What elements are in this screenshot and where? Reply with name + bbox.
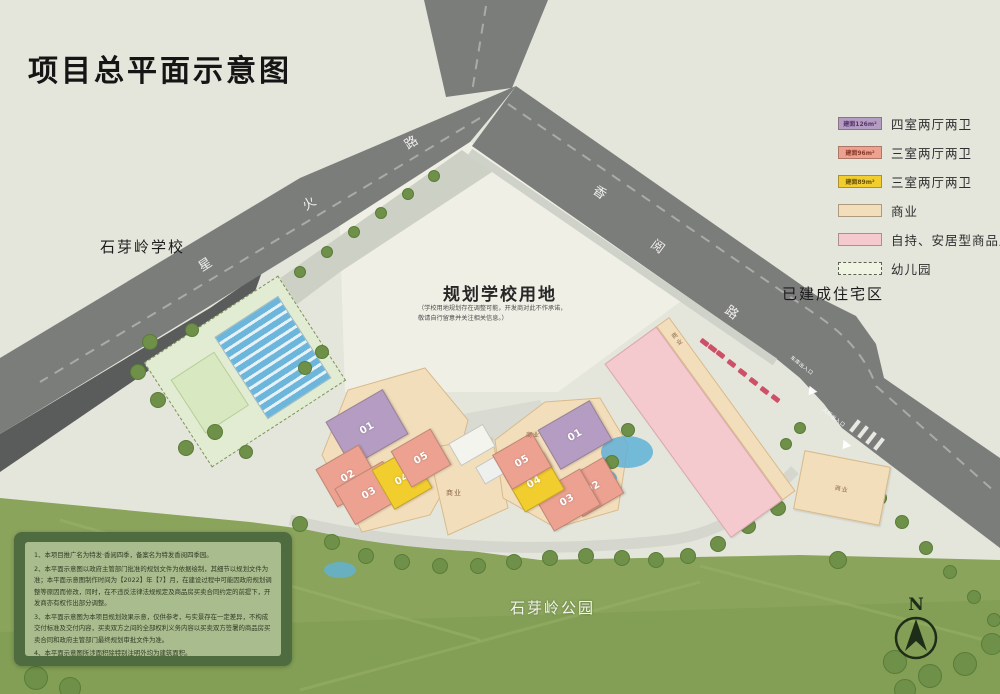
tree-icon [402, 188, 414, 200]
legend-label: 三室两厅两卫 [891, 172, 972, 191]
tree-icon [321, 246, 333, 258]
tree-icon [130, 364, 146, 380]
legend-row-126: 建面126m² 四室两厅两卫 [838, 114, 996, 133]
tree-icon [294, 266, 306, 278]
commercial-label: 商业 [526, 430, 540, 439]
tree-icon [919, 541, 933, 555]
tree-icon [794, 422, 806, 434]
tree-icon [432, 558, 448, 574]
legend-swatch-96: 建面96m² [838, 146, 882, 159]
tree-icon [894, 679, 916, 694]
tree-icon [428, 170, 440, 182]
note-line: 2、本平面示意图以政府主管部门批准的规划文件为依据绘制，其细节以规划文件为准；本… [34, 564, 272, 610]
tree-icon [506, 554, 522, 570]
legend-row-89: 建面89m² 三室两厅两卫 [838, 172, 996, 191]
tree-icon [470, 558, 486, 574]
legend-swatch-kindergarten [838, 262, 882, 275]
label-planned-school-note: （学校用地规划存在调整可能，开发商对此不作承诺，敬请自行留意并关注相关信息。） [418, 304, 570, 323]
compass-needle-icon [905, 619, 927, 651]
legend-label: 三室两厅两卫 [891, 143, 972, 162]
label-planned-school: 规划学校用地 [414, 280, 586, 305]
tree-icon [150, 392, 166, 408]
notes-panel-inner: 1、本项目推广名为特发·香阅四季，备案名为特发香阅四季园。 2、本平面示意图以政… [25, 542, 281, 656]
tree-icon [987, 613, 1000, 627]
page-title: 项目总平面示意图 [28, 46, 292, 90]
tree-icon [542, 550, 558, 566]
compass-n-label: N [908, 595, 924, 615]
tree-icon [24, 666, 48, 690]
tree-icon [375, 207, 387, 219]
tree-icon [358, 548, 374, 564]
tree-icon [292, 516, 308, 532]
legend-label: 幼儿园 [891, 259, 932, 278]
tree-icon [710, 536, 726, 552]
tree-icon [621, 423, 635, 437]
tree-icon [648, 552, 664, 568]
tree-icon [918, 664, 942, 688]
tree-icon [178, 440, 194, 456]
road-top [424, 0, 548, 97]
legend-row-96: 建面96m² 三室两厅两卫 [838, 143, 996, 162]
legend-swatch-126: 建面126m² [838, 117, 882, 130]
legend-label: 自持、安居型商品房 [891, 230, 1000, 249]
legend-row-affordable: 自持、安居型商品房 [838, 230, 996, 249]
legend-row-kindergarten: 幼儿园 [838, 259, 996, 278]
note-line: 4、本平面示意图所涉面积除特别注明外均为建筑面积。 [34, 648, 272, 656]
legend-swatch-commercial [838, 204, 882, 217]
tree-icon [142, 334, 158, 350]
notes-panel: 1、本项目推广名为特发·香阅四季，备案名为特发香阅四季园。 2、本平面示意图以政… [14, 532, 292, 666]
tree-icon [185, 323, 199, 337]
legend-label: 商业 [891, 201, 918, 220]
tree-icon [967, 590, 981, 604]
tree-icon [680, 548, 696, 564]
tree-icon [207, 424, 223, 440]
tree-icon [298, 361, 312, 375]
note-line: 3、本平面示意图为本项目规划效果示意，仅供参考，与实景存在一定差异，不构成交付标… [34, 612, 272, 647]
legend-swatch-89: 建面89m² [838, 175, 882, 188]
legend-swatch-affordable [838, 233, 882, 246]
legend-label: 四室两厅两卫 [891, 114, 972, 133]
tree-icon [59, 677, 81, 694]
commercial-label: 商业 [834, 482, 849, 494]
tree-icon [324, 534, 340, 550]
commercial-label: 商业 [446, 488, 462, 498]
tree-icon [953, 652, 977, 676]
tree-icon [780, 438, 792, 450]
north-compass: N [886, 592, 946, 664]
label-park: 石芽岭公园 [510, 597, 595, 618]
tree-icon [578, 548, 594, 564]
tree-icon [943, 565, 957, 579]
tree-icon [614, 550, 630, 566]
tree-icon [239, 445, 253, 459]
tree-icon [829, 551, 847, 569]
water-feature [324, 562, 356, 578]
tree-icon [348, 226, 360, 238]
label-school-left: 石芽岭学校 [100, 236, 185, 257]
tree-icon [981, 633, 1000, 655]
legend-row-commercial: 商业 [838, 201, 996, 220]
tree-icon [895, 515, 909, 529]
tree-icon [394, 554, 410, 570]
site-plan-canvas: 商业 商业 01 02 03 04 05 01 02 03 04 05 商业 商… [0, 0, 1000, 694]
tree-icon [315, 345, 329, 359]
note-line: 1、本项目推广名为特发·香阅四季，备案名为特发香阅四季园。 [34, 550, 272, 562]
legend: 建面126m² 四室两厅两卫 建面96m² 三室两厅两卫 建面89m² 三室两厅… [838, 114, 996, 288]
